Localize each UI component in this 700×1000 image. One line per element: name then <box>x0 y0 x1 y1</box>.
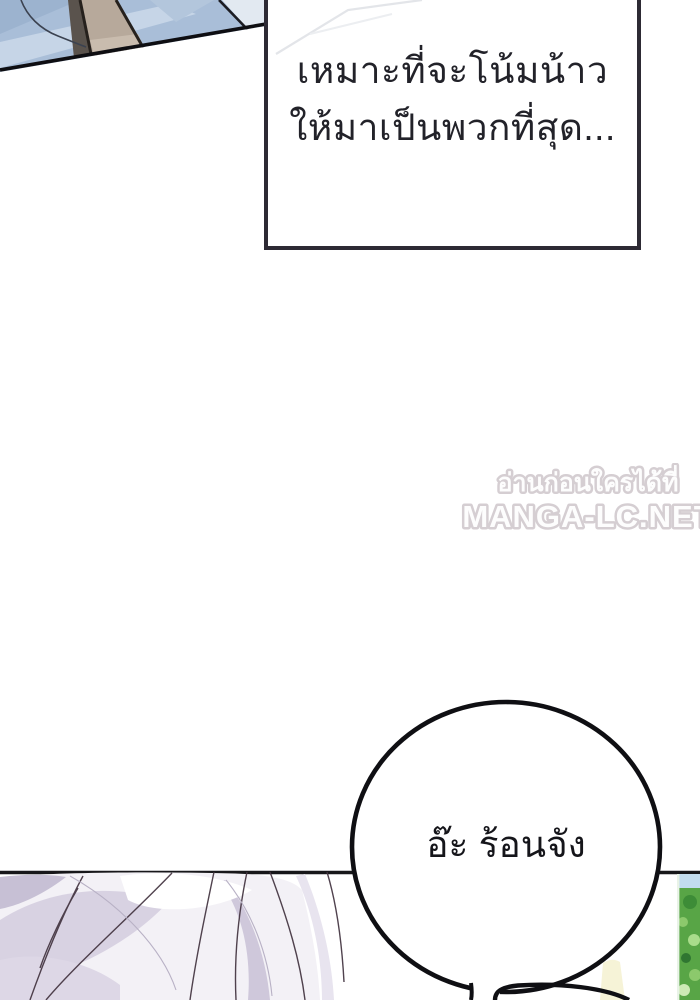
speech-bubble-text: อ๊ะ ร้อนจัง <box>381 821 631 869</box>
comic-page: เหมาะที่จะโน้มน้าว ให้มาเป็นพวกที่สุด...… <box>0 0 700 1000</box>
narration-line-2: ให้มาเป็นพวกที่สุด... <box>268 99 637 156</box>
narration-box: เหมาะที่จะโน้มน้าว ให้มาเป็นพวกที่สุด... <box>264 0 641 250</box>
site-watermark: อ่านก่อนใครได้ที่ MANGA-LC.NET <box>458 463 700 541</box>
hair-art <box>0 872 344 1000</box>
panel-blue-clothing-art <box>0 0 280 92</box>
watermark-tagline: อ่านก่อนใครได้ที่ <box>497 465 678 497</box>
speech-bubble-tail <box>471 983 472 1000</box>
narration-line-1: เหมาะที่จะโน้มน้าว <box>268 42 637 99</box>
watermark-site-name: MANGA-LC.NET <box>462 499 700 534</box>
foliage-art <box>677 874 700 1000</box>
narration-text: เหมาะที่จะโน้มน้าว ให้มาเป็นพวกที่สุด... <box>268 42 637 156</box>
